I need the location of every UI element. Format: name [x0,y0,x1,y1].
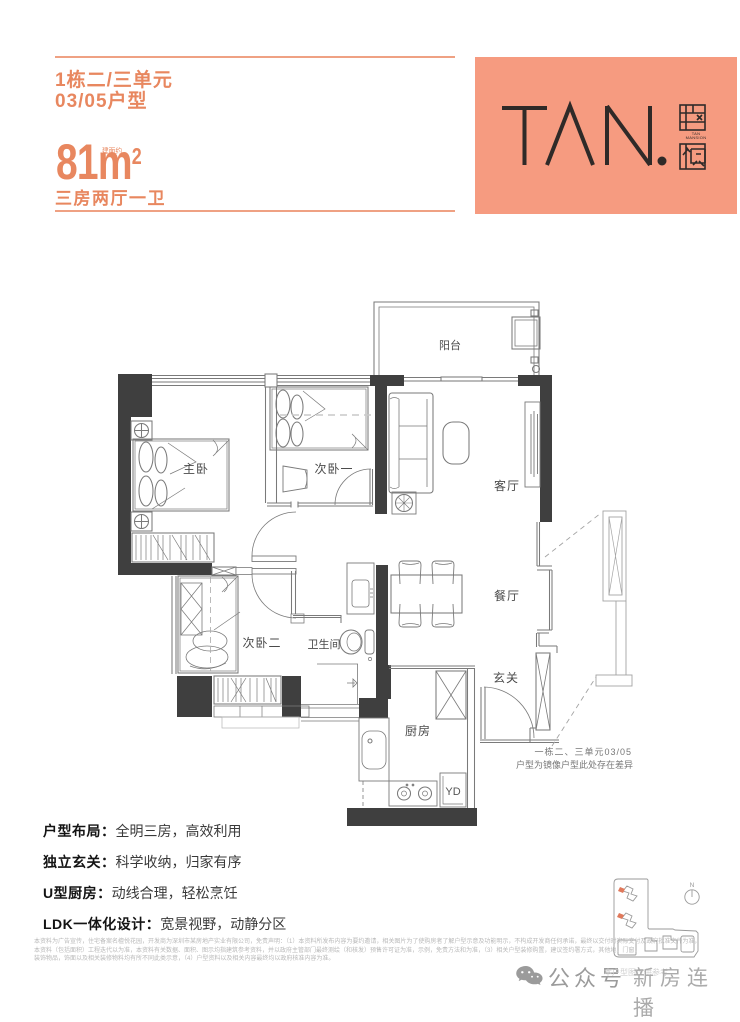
svg-text:卫生间: 卫生间 [308,637,341,651]
svg-text:阳台: 阳台 [439,338,461,352]
svg-text:户型为镜像户型此处存在差异: 户型为镜像户型此处存在差异 [516,759,633,770]
svg-text:次卧一: 次卧一 [314,462,353,476]
svg-text:餐厅: 餐厅 [494,588,520,603]
svg-text:玄关: 玄关 [493,670,519,685]
svg-text:厨房: 厨房 [405,723,431,738]
svg-text:一栋二、三单元03/05: 一栋二、三单元03/05 [534,746,632,757]
svg-text:次卧二: 次卧二 [242,636,281,650]
svg-text:主卧: 主卧 [183,462,209,476]
svg-text:N: N [690,882,695,889]
svg-text:客厅: 客厅 [494,478,520,493]
svg-text:YD: YD [445,786,460,798]
